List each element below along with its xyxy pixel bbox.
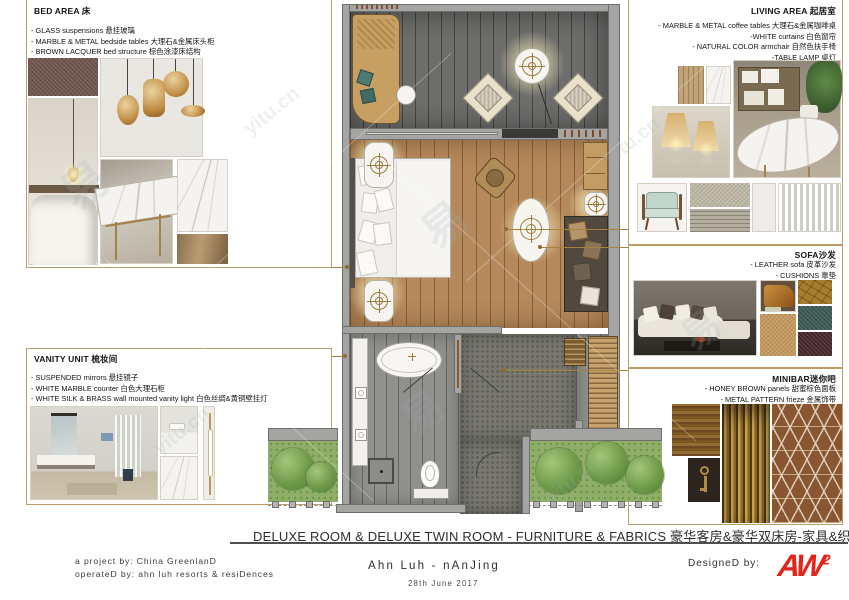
wall-bath-bottom [336, 504, 466, 513]
hotel-name: Ahn Luh - nAnJing [368, 560, 500, 572]
chair-frame [679, 194, 682, 220]
leader-dot [502, 368, 506, 372]
pillow [373, 222, 393, 246]
storage-box [768, 89, 784, 105]
bed-area-bullet: - GLASS suspensions 悬挂玻璃 [31, 26, 135, 37]
vanity-light-photo [203, 406, 215, 500]
leather-sample-photo [760, 280, 796, 312]
vanity-bullet: - WHITE MARBLE counter 白色大理石柜 [31, 384, 165, 395]
teal-cushion [360, 88, 377, 105]
shelf-line [586, 173, 605, 174]
aw2-logo-sup: 2 [822, 552, 831, 568]
leader-line-minibar [504, 370, 628, 371]
pendant-cord [73, 99, 74, 169]
headboard-shelf [29, 185, 99, 193]
striped-fabric-swatch [690, 209, 750, 232]
sofa-chaise-cushion [357, 19, 395, 49]
living-area-bullet: - MARBLE & METAL coffee tables 大理石&金属咖啡桌 [658, 21, 836, 32]
teal-cushion [356, 69, 374, 87]
pendant-cord [127, 59, 128, 97]
sofa-pillow [675, 304, 691, 320]
sofa-pillow [643, 306, 660, 323]
toilet-bowl [425, 465, 435, 481]
teal-fabric-swatch [798, 306, 832, 330]
terrace-wall-right [530, 428, 662, 441]
brass-screen-photo [722, 404, 770, 523]
bed-linen [31, 195, 97, 265]
chair-cushion [475, 85, 502, 112]
sofa-chaise [716, 321, 750, 339]
towel [101, 433, 113, 441]
chair-leg [675, 218, 679, 230]
pillow [356, 249, 379, 276]
column [635, 501, 642, 508]
storage-box [761, 69, 779, 83]
banquette-bench [564, 216, 608, 312]
light-target-symbol [522, 56, 542, 76]
white-curtains-photo [778, 183, 841, 232]
marble-counter-photo [160, 406, 198, 454]
coffee-table [664, 341, 720, 351]
bench-cushion [572, 262, 592, 282]
title-rule [230, 542, 848, 544]
bronze-metal-swatch [177, 234, 228, 264]
minibar-cabinet [583, 142, 608, 190]
wall-left [342, 4, 350, 513]
table-lamps-photo [652, 106, 730, 178]
leader-line-table [506, 229, 628, 230]
tree [626, 456, 664, 494]
curtain-ticks [564, 130, 604, 137]
marble-table-top [732, 109, 845, 181]
column [652, 501, 659, 508]
brass-leg [808, 167, 810, 177]
sofa-bullet: - LEATHER sofa 皮革沙发 [750, 260, 836, 271]
project-by: a project by: China GreenlanD [75, 555, 217, 568]
brass-leg [764, 165, 766, 177]
column [289, 501, 296, 508]
sink [355, 387, 367, 399]
lamp-glow [698, 141, 714, 157]
light-target-symbol [370, 292, 388, 310]
entry-floor [460, 334, 576, 440]
column [618, 501, 625, 508]
glass-pendant-sphere [163, 71, 189, 97]
sofa-pillow [659, 304, 675, 320]
suspended-mirror [51, 413, 77, 455]
leader-dot [343, 354, 347, 358]
column [584, 501, 591, 508]
light-target-symbol [588, 196, 604, 212]
marble-coffee-table-photo [733, 60, 841, 178]
armchair-photo [637, 183, 687, 232]
living-area-bullet: -WHITE curtains 白色窗帘 [750, 32, 836, 43]
minibar-bullet: - HONEY BROWN panels 甜蜜棕色面板 [705, 384, 836, 395]
window-curtain [115, 415, 141, 477]
towel-rail [457, 340, 459, 388]
stool [123, 469, 133, 481]
toilet [420, 460, 440, 488]
bathroom-vanity-counter [352, 338, 368, 466]
aw2-logo-text: AW [776, 548, 824, 583]
date: 28th June 2017 [408, 579, 479, 588]
wood-swatch [678, 66, 704, 104]
bed-area-title: BED AREA 床 [34, 5, 91, 17]
glass-pendant-barrel [143, 79, 165, 117]
silk-light-tube [208, 429, 213, 477]
duvet [396, 161, 450, 275]
sheer-fabric-swatch [752, 183, 776, 232]
bathtub [376, 342, 442, 378]
presentation-board: BED AREA 床 - GLASS suspensions 悬挂玻璃 - MA… [0, 0, 849, 600]
brown-fabric-swatch [28, 58, 98, 96]
vanity-bullet: - WHITE SILK & BRASS wall mounted vanity… [31, 394, 268, 405]
armchair-seat [644, 208, 680, 218]
storage-box [744, 91, 764, 105]
vanity-counter [37, 455, 95, 465]
terrace-wall-left [268, 428, 338, 441]
key-bit [700, 488, 705, 491]
white-marble-swatch [706, 66, 731, 104]
column [306, 501, 313, 508]
shower-drain [380, 470, 383, 473]
burgundy-fabric-swatch [798, 332, 832, 356]
white-marble-slab [160, 456, 198, 500]
pendant-cord [153, 59, 154, 81]
tv-console [502, 129, 558, 138]
sink [355, 429, 367, 441]
column [533, 501, 540, 508]
vanity-bullet: - SUSPENDED mirrors 悬挂镜子 [31, 373, 138, 384]
shelf-line [586, 157, 605, 158]
brass-leg [115, 222, 117, 260]
glass-pendant-oval [117, 95, 139, 125]
leather-edge [765, 307, 781, 311]
curtain-zigzag [356, 5, 400, 9]
key-detail-photo [688, 458, 720, 502]
bed-area-bullet: - MARBLE & METAL bedside tables 大理石&金属床头… [31, 37, 215, 48]
white-marble-swatch [177, 159, 228, 232]
designed-by-label: DesigneD by: [688, 558, 760, 569]
leader-dot [538, 245, 542, 249]
wall-corridor-right [522, 436, 530, 514]
metal-pattern-frieze-photo [772, 404, 842, 523]
sliding-door [366, 132, 498, 135]
sofa-pillow [703, 306, 718, 321]
toilet-shelf [413, 488, 449, 499]
bowl [696, 337, 706, 342]
chair-cushion [565, 85, 592, 112]
tub-mark [412, 353, 413, 361]
leader-dot [504, 227, 508, 231]
bed-area-bullet: - BROWN LACQUER bed structure 棕色涂漆床结构 [31, 47, 201, 58]
living-area-bullet: - NATURAL COLOR armchair 自然色扶手椅 [692, 42, 836, 53]
luggage-bench [564, 338, 586, 366]
honey-wood-panel-swatch [672, 404, 720, 456]
column [567, 501, 574, 508]
shower-tray [368, 458, 394, 484]
leader-line-sofa [540, 247, 628, 248]
bathroom-vanity-photo [30, 406, 158, 500]
entry-floor-lower [460, 440, 522, 514]
tan-suede-swatch [760, 314, 796, 356]
vanity-title: VANITY UNIT 梳妆间 [34, 353, 117, 365]
chair-leg [645, 218, 649, 230]
tree [306, 462, 336, 492]
marble-metal-table-photo [100, 159, 173, 264]
wall-bath-top [342, 326, 502, 334]
beige-fabric-swatch [690, 183, 750, 207]
sink-bowl [358, 390, 364, 396]
pendant-cord [193, 59, 194, 107]
leather-sofa-photo [633, 280, 757, 356]
lamp-glow [667, 135, 685, 153]
tree [536, 448, 582, 494]
chair-seat [482, 165, 507, 190]
round-side-table [396, 85, 416, 105]
column [550, 501, 557, 508]
glass-suspensions-photo [100, 58, 203, 157]
leader-dot [345, 265, 349, 269]
storage-box [742, 71, 758, 83]
column [601, 501, 608, 508]
bench-cushion [568, 221, 589, 242]
bench-cushion [581, 239, 602, 260]
operated-by: operateD by: ahn luh resorts & resiDence… [75, 568, 274, 581]
glass-pendant-disc [181, 105, 205, 117]
rug [67, 483, 117, 495]
key-bow [700, 466, 709, 475]
column [323, 501, 330, 508]
leather-piece [764, 285, 794, 307]
column [272, 501, 279, 508]
soap-dish [169, 423, 185, 430]
tree [586, 442, 628, 484]
aw2-logo: AW2 [776, 548, 832, 584]
brass-leg [159, 214, 161, 256]
bed-pendant-photo [28, 98, 98, 265]
light-target-symbol [370, 156, 388, 174]
living-area-title: LIVING AREA 起居室 [751, 5, 836, 17]
gold-pattern-swatch [798, 280, 832, 304]
chair-frame [642, 194, 645, 220]
sink-bowl [358, 432, 364, 438]
bench-cushion [580, 286, 600, 306]
terrace-sofa [352, 14, 400, 124]
